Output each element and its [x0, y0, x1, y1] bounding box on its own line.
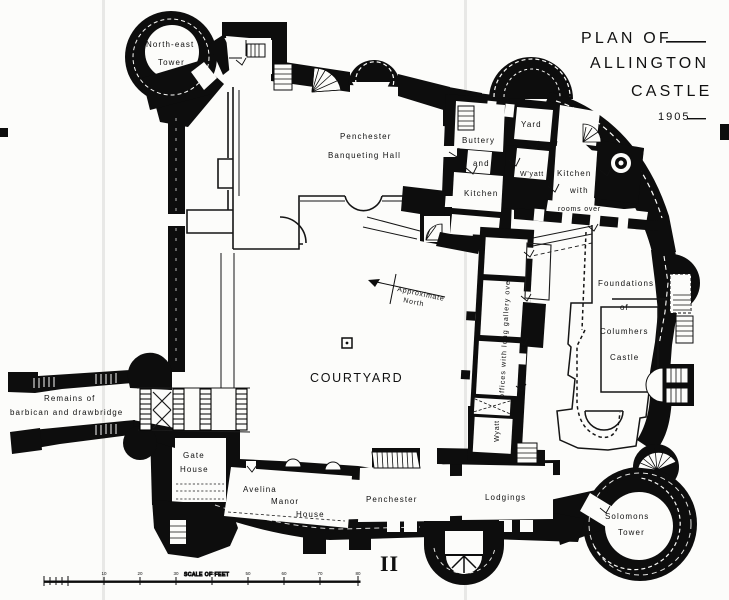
- svg-text:barbican and drawbridge: barbican and drawbridge: [10, 408, 123, 417]
- svg-text:40: 40: [209, 571, 215, 576]
- svg-text:Solomons: Solomons: [605, 512, 649, 521]
- svg-text:Manor: Manor: [271, 497, 299, 506]
- svg-text:Tower: Tower: [618, 528, 645, 537]
- svg-text:Buttery: Buttery: [462, 136, 495, 145]
- svg-text:1905: 1905: [658, 111, 690, 123]
- svg-text:Banqueting Hall: Banqueting Hall: [328, 151, 401, 160]
- svg-text:80: 80: [355, 571, 361, 576]
- svg-text:of: of: [620, 303, 629, 312]
- svg-text:20: 20: [137, 571, 143, 576]
- svg-text:ALLINGTON: ALLINGTON: [590, 55, 709, 72]
- svg-text:COURTYARD: COURTYARD: [310, 371, 403, 385]
- svg-text:Foundations: Foundations: [598, 279, 654, 288]
- svg-text:Wyatt: Wyatt: [494, 420, 501, 442]
- svg-text:Lodgings: Lodgings: [485, 493, 526, 502]
- svg-text:II: II: [380, 551, 399, 576]
- svg-text:10: 10: [101, 571, 107, 576]
- svg-text:Columhers: Columhers: [600, 327, 649, 336]
- svg-text:CASTLE: CASTLE: [631, 83, 712, 100]
- svg-text:Castle: Castle: [610, 353, 639, 362]
- svg-text:Gate: Gate: [183, 451, 205, 460]
- svg-text:Yard: Yard: [521, 120, 542, 129]
- svg-text:SCALE OF FEET: SCALE OF FEET: [184, 572, 229, 578]
- svg-text:Avelina: Avelina: [243, 485, 277, 494]
- svg-text:50: 50: [245, 571, 251, 576]
- svg-text:Penchester: Penchester: [340, 132, 391, 141]
- svg-text:PLAN OF: PLAN OF: [581, 30, 672, 47]
- svg-text:Tower: Tower: [158, 58, 185, 67]
- svg-text:Kitchen: Kitchen: [464, 189, 498, 198]
- svg-text:W'yatt: W'yatt: [520, 171, 544, 178]
- svg-text:North-east: North-east: [146, 40, 194, 49]
- svg-text:and: and: [473, 159, 490, 168]
- svg-text:Penchester: Penchester: [366, 495, 417, 504]
- svg-text:Kitchen: Kitchen: [557, 169, 591, 178]
- svg-text:30: 30: [173, 571, 179, 576]
- svg-text:60: 60: [281, 571, 287, 576]
- svg-text:House: House: [180, 465, 209, 474]
- svg-text:rooms over: rooms over: [558, 206, 601, 213]
- svg-text:with: with: [569, 186, 589, 195]
- svg-text:House: House: [296, 510, 325, 519]
- svg-text:70: 70: [317, 571, 323, 576]
- svg-text:Remains of: Remains of: [44, 394, 95, 403]
